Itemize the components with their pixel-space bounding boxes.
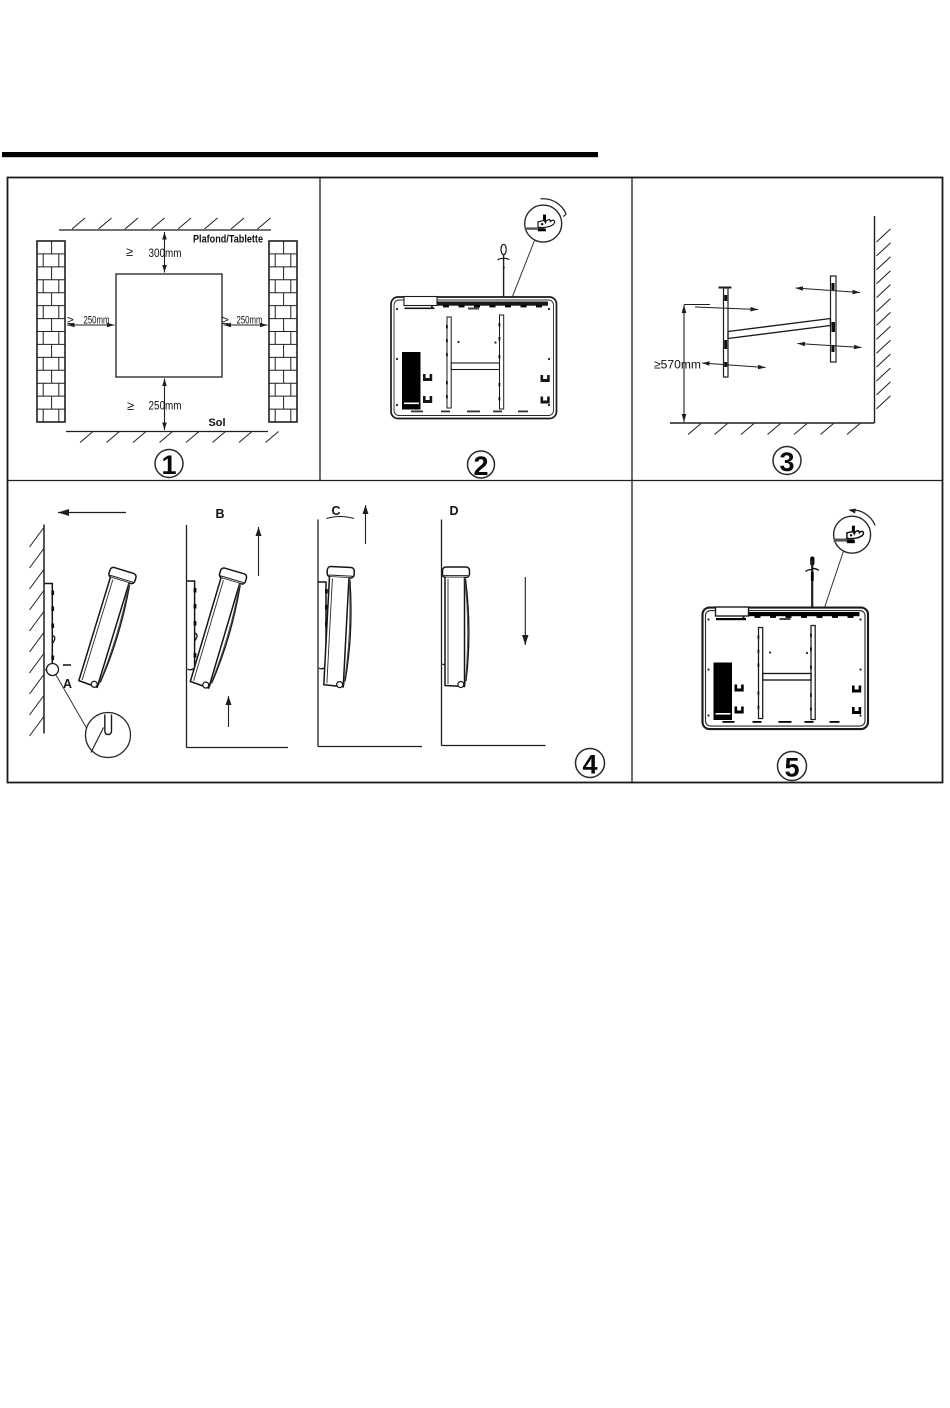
svg-text:5: 5 bbox=[784, 752, 799, 782]
svg-text:≥: ≥ bbox=[222, 313, 229, 327]
svg-text:300mm: 300mm bbox=[149, 246, 182, 260]
svg-text:≥: ≥ bbox=[127, 398, 134, 413]
svg-text:250mm: 250mm bbox=[237, 315, 263, 327]
svg-text:C: C bbox=[332, 503, 342, 518]
svg-text:B: B bbox=[216, 506, 225, 521]
svg-text:≥570mm: ≥570mm bbox=[654, 358, 701, 372]
svg-text:D: D bbox=[450, 503, 459, 518]
svg-text:2: 2 bbox=[473, 451, 488, 481]
svg-text:Sol: Sol bbox=[209, 417, 226, 429]
svg-text:250mm: 250mm bbox=[149, 399, 182, 413]
svg-text:1: 1 bbox=[161, 450, 176, 480]
svg-text:4: 4 bbox=[582, 749, 597, 779]
svg-text:250mm: 250mm bbox=[84, 315, 110, 327]
svg-text:Plafond/Tablette: Plafond/Tablette bbox=[193, 234, 263, 246]
svg-text:≥: ≥ bbox=[126, 244, 133, 259]
svg-text:3: 3 bbox=[779, 447, 794, 477]
svg-text:≥: ≥ bbox=[67, 313, 74, 327]
